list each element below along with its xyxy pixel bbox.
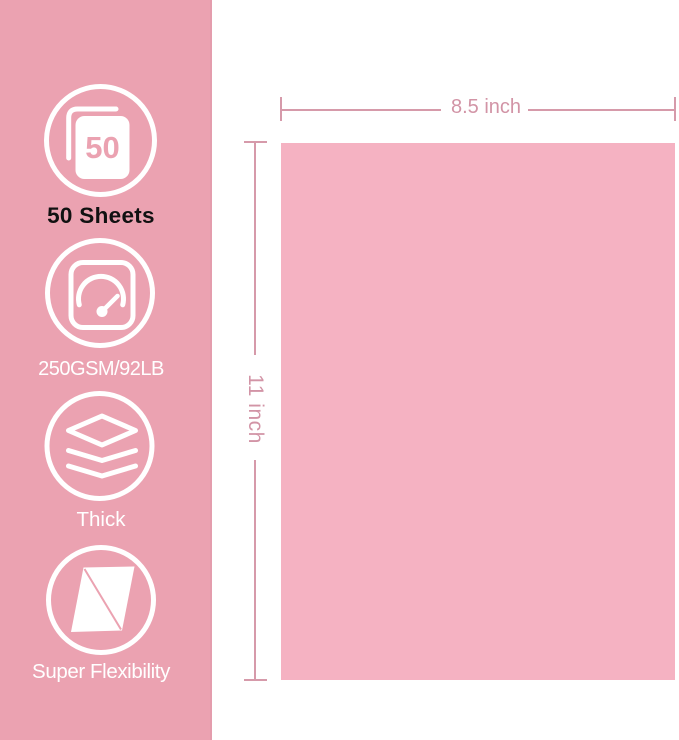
svg-text:50: 50 — [85, 130, 119, 165]
